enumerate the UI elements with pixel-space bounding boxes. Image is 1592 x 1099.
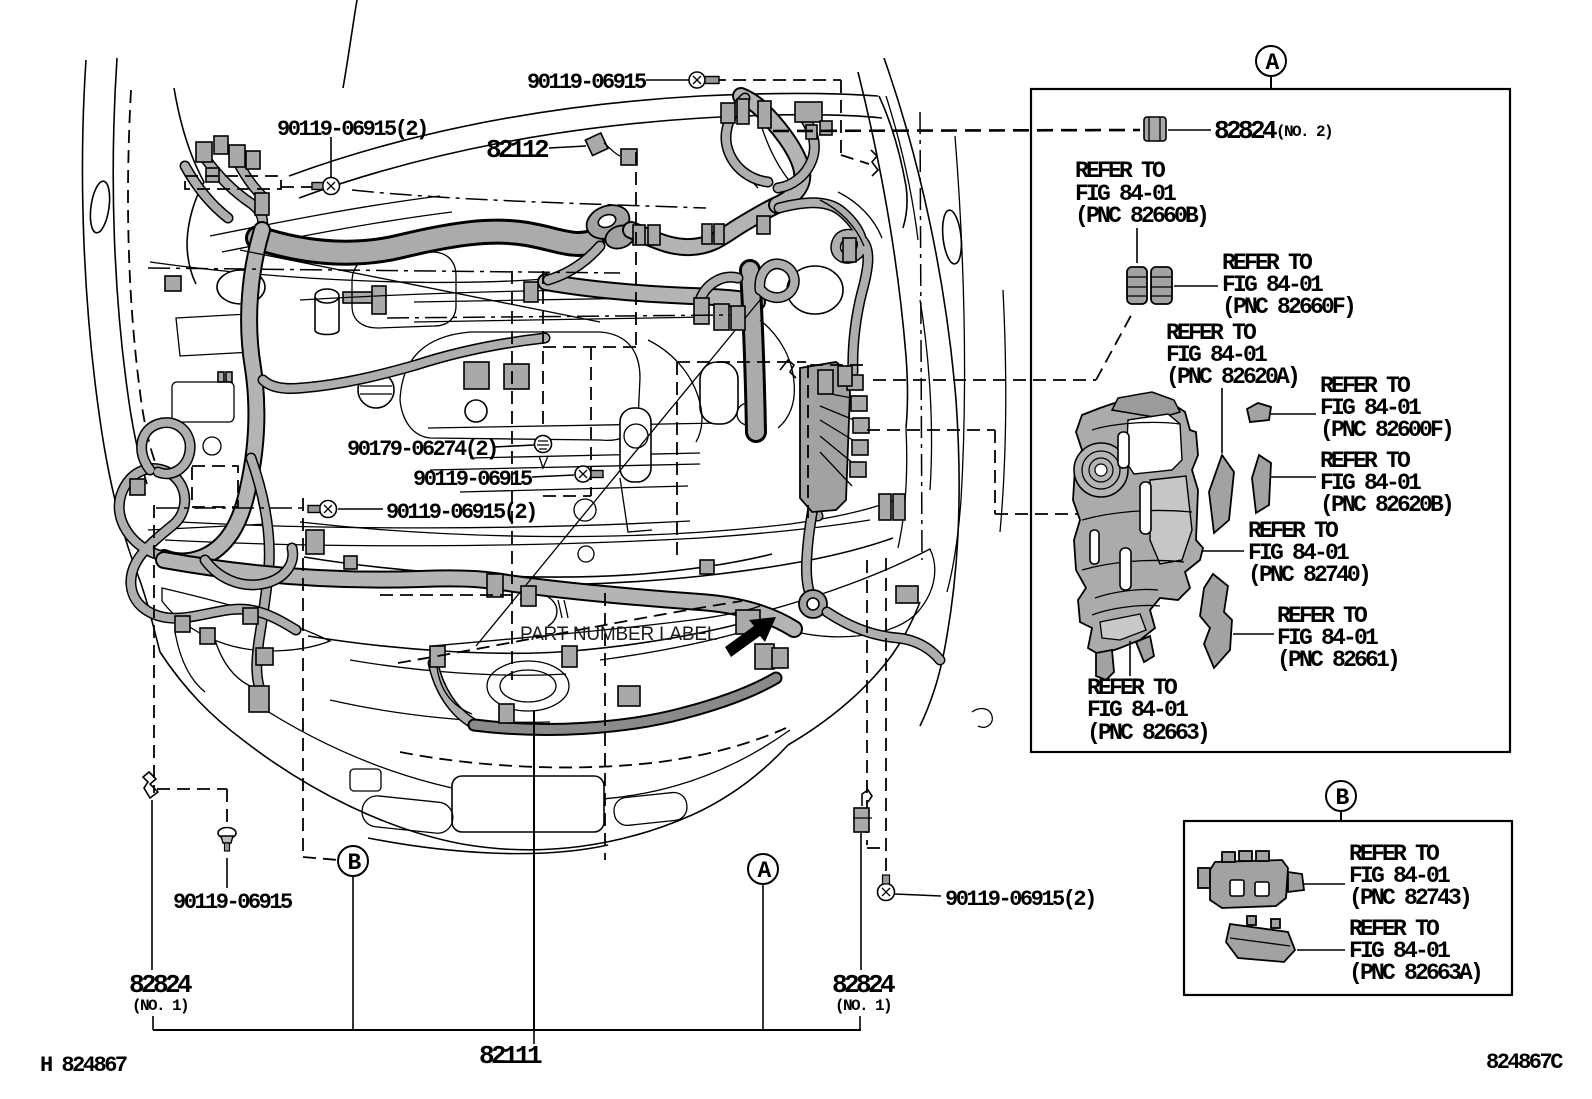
svg-text:(PNC 82743): (PNC 82743) [1349,885,1470,911]
svg-text:(PNC 82600F): (PNC 82600F) [1320,417,1452,443]
svg-text:(NO. 1): (NO. 1) [132,997,188,1015]
svg-text:H 824867: H 824867 [40,1053,127,1078]
svg-text:90119-06915: 90119-06915 [173,890,293,915]
svg-text:90119-06915: 90119-06915 [413,467,533,492]
svg-text:824867C: 824867C [1486,1050,1563,1075]
svg-text:(NO. 1): (NO. 1) [835,997,891,1015]
svg-text:PART NUMBER LABEL: PART NUMBER LABEL [520,624,717,645]
svg-text:90119-06915(2): 90119-06915(2) [945,887,1095,912]
svg-text:(NO. 2): (NO. 2) [1276,123,1332,141]
svg-text:(PNC 82661): (PNC 82661) [1277,647,1398,673]
svg-text:(PNC 82740): (PNC 82740) [1248,562,1369,588]
svg-text:(PNC 82663A): (PNC 82663A) [1349,960,1481,986]
svg-text:(PNC 82663): (PNC 82663) [1087,720,1208,746]
svg-text:82111: 82111 [479,1041,542,1071]
svg-text:90119-06915(2): 90119-06915(2) [277,117,427,142]
svg-text:82112: 82112 [486,135,549,165]
svg-text:90179-06274(2): 90179-06274(2) [347,437,497,462]
svg-text:90119-06915: 90119-06915 [527,70,647,95]
svg-text:90119-06915(2): 90119-06915(2) [386,500,536,525]
svg-text:(PNC 82660F): (PNC 82660F) [1222,294,1354,320]
svg-text:(PNC 82620B): (PNC 82620B) [1320,492,1452,518]
svg-text:82824: 82824 [129,970,192,1000]
svg-text:82824: 82824 [832,970,895,1000]
svg-text:(PNC 82620A): (PNC 82620A) [1166,364,1298,390]
svg-text:82824: 82824 [1214,116,1277,146]
svg-text:(PNC 82660B): (PNC 82660B) [1075,203,1207,229]
